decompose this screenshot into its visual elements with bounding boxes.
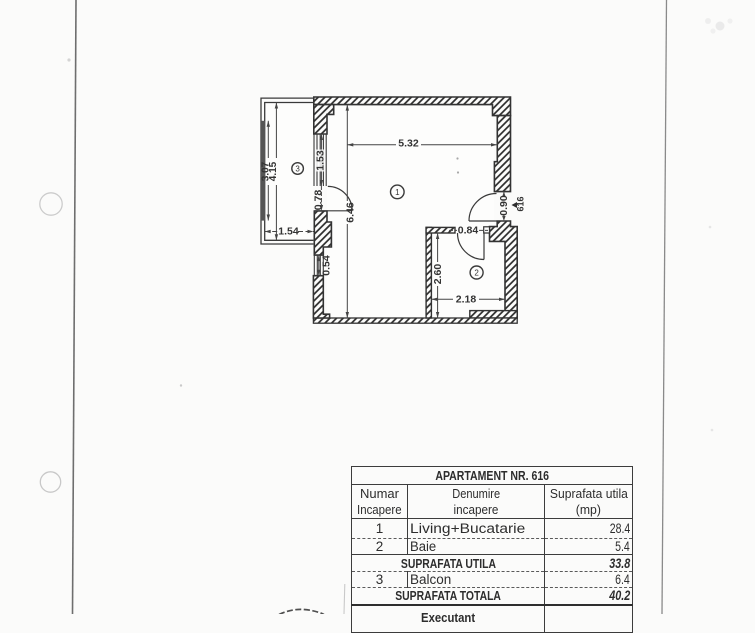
svg-text:1.53: 1.53 [314, 150, 326, 171]
svg-text:6.46: 6.46 [344, 202, 356, 223]
svg-text:2: 2 [474, 269, 479, 278]
svg-text:0.78: 0.78 [313, 190, 325, 211]
svg-text:1: 1 [395, 188, 400, 197]
svg-text:1.54: 1.54 [278, 226, 299, 238]
svg-text:2.18: 2.18 [456, 293, 477, 305]
svg-text:616: 616 [516, 196, 526, 211]
svg-text:0.54: 0.54 [320, 255, 332, 276]
svg-text:0.90: 0.90 [498, 195, 510, 216]
svg-text:2.60: 2.60 [432, 264, 444, 285]
svg-text:4.15: 4.15 [268, 161, 279, 181]
svg-text:0.84: 0.84 [458, 224, 479, 236]
svg-text:3: 3 [295, 165, 300, 174]
svg-text:5.32: 5.32 [398, 138, 419, 150]
